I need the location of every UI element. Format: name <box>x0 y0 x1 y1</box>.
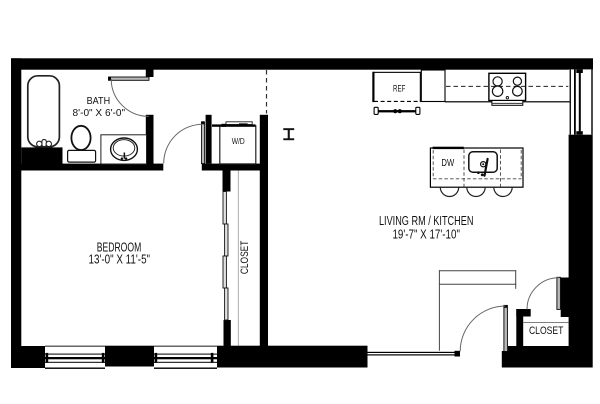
svg-text:13'-0" X 11'-5": 13'-0" X 11'-5" <box>89 252 151 266</box>
svg-text:19'-7" X 17'-10": 19'-7" X 17'-10" <box>392 227 460 241</box>
svg-text:8'-0" X 6'-0": 8'-0" X 6'-0" <box>73 107 126 119</box>
svg-text:CLOSET: CLOSET <box>529 325 564 337</box>
svg-text:REF: REF <box>393 84 405 95</box>
svg-text:W/D: W/D <box>232 136 245 146</box>
svg-text:DW: DW <box>441 158 454 169</box>
svg-text:LIVING RM / KITCHEN: LIVING RM / KITCHEN <box>379 214 474 228</box>
svg-text:CLOSET: CLOSET <box>239 240 251 274</box>
svg-text:BATH: BATH <box>87 95 111 107</box>
